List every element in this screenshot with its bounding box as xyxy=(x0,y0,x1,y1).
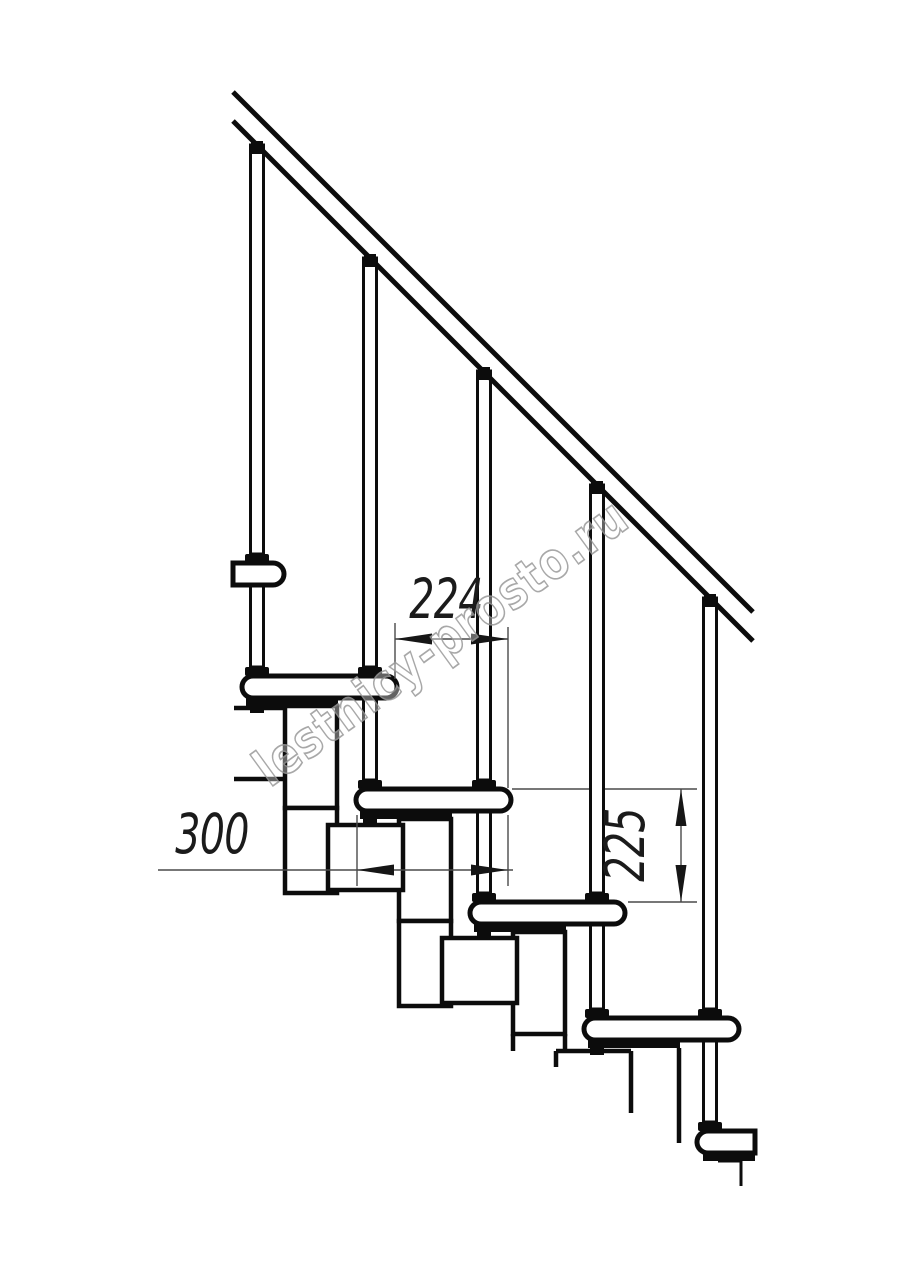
tread-1-bolt-tab xyxy=(250,706,264,713)
tread-4-bolt-tab xyxy=(590,1048,604,1055)
handrail-lower-edge xyxy=(233,121,753,641)
baluster-1 xyxy=(245,141,269,676)
baluster-1-post xyxy=(251,145,264,554)
baluster-1-lower-rod xyxy=(251,585,264,667)
watermark-text: lestnicy-prosto.ru xyxy=(243,487,640,798)
tread-2-bolt-tab xyxy=(363,819,377,826)
tread-4-underplate xyxy=(588,1039,680,1048)
module-box-2 xyxy=(442,938,517,1003)
baluster-5-lower-rod xyxy=(704,1040,717,1122)
tread-3-bolt-tab xyxy=(477,932,491,939)
dimension-rise-arrow-down xyxy=(676,865,687,902)
tread-5-cut xyxy=(697,1131,755,1153)
technical-drawing-page: 224 300 225 lestnicy-prosto.ru xyxy=(0,0,914,1280)
dimension-rise-arrow-up xyxy=(676,789,687,826)
baluster-5-post xyxy=(704,598,717,1009)
tread-2-underplate xyxy=(360,810,452,819)
baluster-5 xyxy=(698,594,722,1131)
baluster-4-lower-rod xyxy=(591,924,604,1009)
tread-4 xyxy=(584,1018,739,1040)
staircase-drawing: 224 300 225 lestnicy-prosto.ru xyxy=(0,0,914,1280)
tread-3-underplate xyxy=(474,923,566,932)
module-column-3a xyxy=(513,932,565,1034)
tread-2 xyxy=(356,789,511,811)
handrail-upper-edge xyxy=(233,92,753,612)
tread-3 xyxy=(470,902,625,924)
dimension-rise-value: 225 xyxy=(595,808,658,881)
baluster-2-post xyxy=(364,258,377,667)
bottom-break-line xyxy=(718,1161,741,1186)
baluster-3-lower-rod xyxy=(478,811,491,893)
handrail xyxy=(233,92,753,641)
tread-0-cut xyxy=(233,563,284,585)
dimension-depth-value: 300 xyxy=(175,804,248,867)
module-box-1 xyxy=(328,825,403,890)
